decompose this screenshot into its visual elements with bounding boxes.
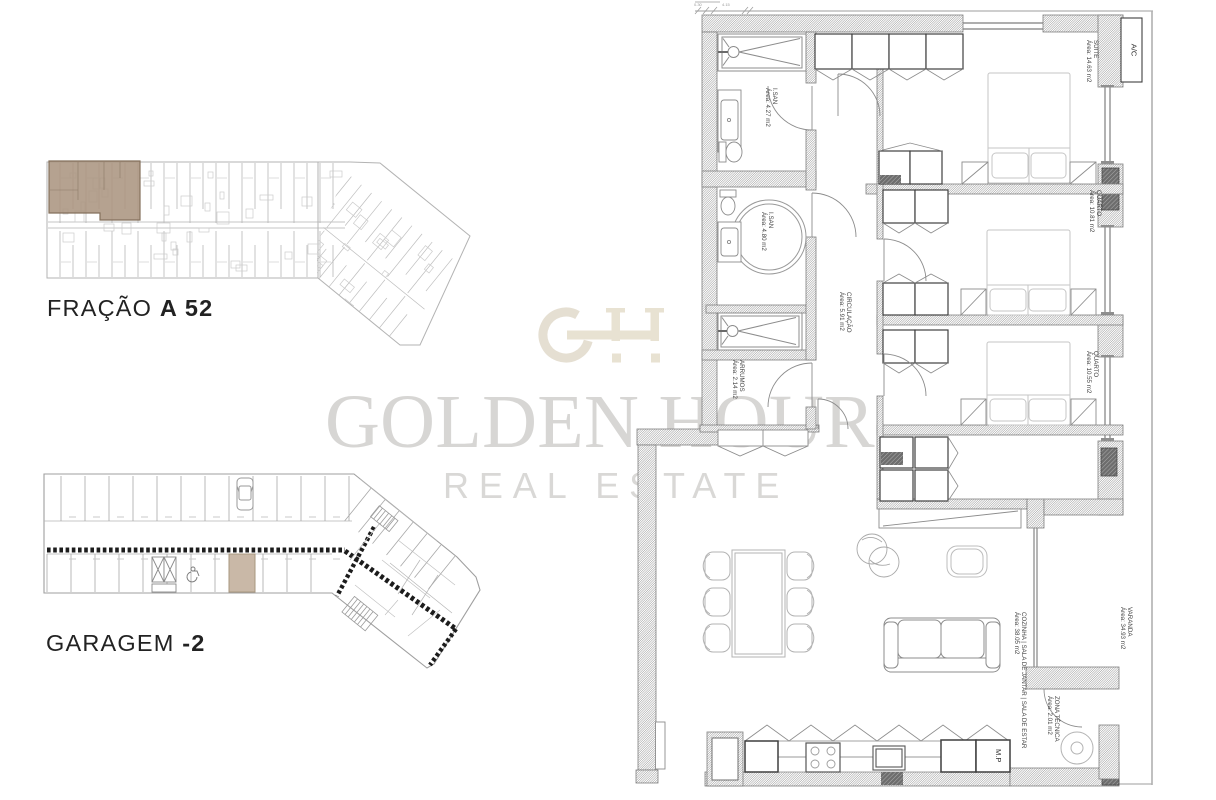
svg-text:GOLDEN HOUR: GOLDEN HOUR [325, 380, 875, 464]
svg-text:ARRUMOS: ARRUMOS [738, 360, 745, 392]
svg-text:4.15: 4.15 [722, 2, 731, 7]
svg-text:VARANDA: VARANDA [1126, 607, 1133, 637]
svg-text:Área: 14.63 m2: Área: 14.63 m2 [1085, 40, 1092, 83]
svg-text:GARAGEM -2: GARAGEM -2 [46, 630, 206, 656]
svg-text:I.SAN: I.SAN [771, 88, 778, 104]
svg-text:0.30: 0.30 [694, 2, 703, 7]
svg-text:Área: 10.55 m2: Área: 10.55 m2 [1085, 351, 1092, 394]
svg-text:Área: 4.27 m2: Área: 4.27 m2 [764, 88, 771, 127]
svg-text:SUITE: SUITE [1092, 40, 1099, 58]
svg-text:QUARTO: QUARTO [1092, 351, 1099, 377]
svg-text:I.SAN: I.SAN [767, 212, 774, 228]
svg-text:COZINHA | SALA DE JANTAR | SAL: COZINHA | SALA DE JANTAR | SALA DE ESTAR [1020, 612, 1027, 749]
svg-text:Área: 5.91 m2: Área: 5.91 m2 [838, 292, 845, 331]
svg-text:Área: 4.80 m2: Área: 4.80 m2 [760, 212, 767, 251]
svg-text:Área: 38.05 m2: Área: 38.05 m2 [1013, 612, 1020, 655]
svg-text:CIRCULAÇÃO: CIRCULAÇÃO [845, 292, 852, 333]
svg-text:Área: 2.14 m2: Área: 2.14 m2 [731, 360, 738, 399]
svg-text:REAL ESTATE: REAL ESTATE [443, 465, 789, 506]
svg-text:Área: 34.93 m2: Área: 34.93 m2 [1119, 607, 1126, 650]
svg-text:ZONA TÉCNICA: ZONA TÉCNICA [1053, 696, 1060, 742]
svg-text:FRAÇÃO A 52: FRAÇÃO A 52 [47, 295, 213, 321]
svg-text:M.P: M.P [994, 749, 1003, 762]
svg-text:Área: 2.01 m2: Área: 2.01 m2 [1046, 696, 1053, 735]
svg-text:A/C: A/C [1130, 44, 1139, 57]
svg-text:Área: 10.81 m2: Área: 10.81 m2 [1088, 190, 1095, 233]
svg-text:QUARTO: QUARTO [1095, 190, 1102, 216]
